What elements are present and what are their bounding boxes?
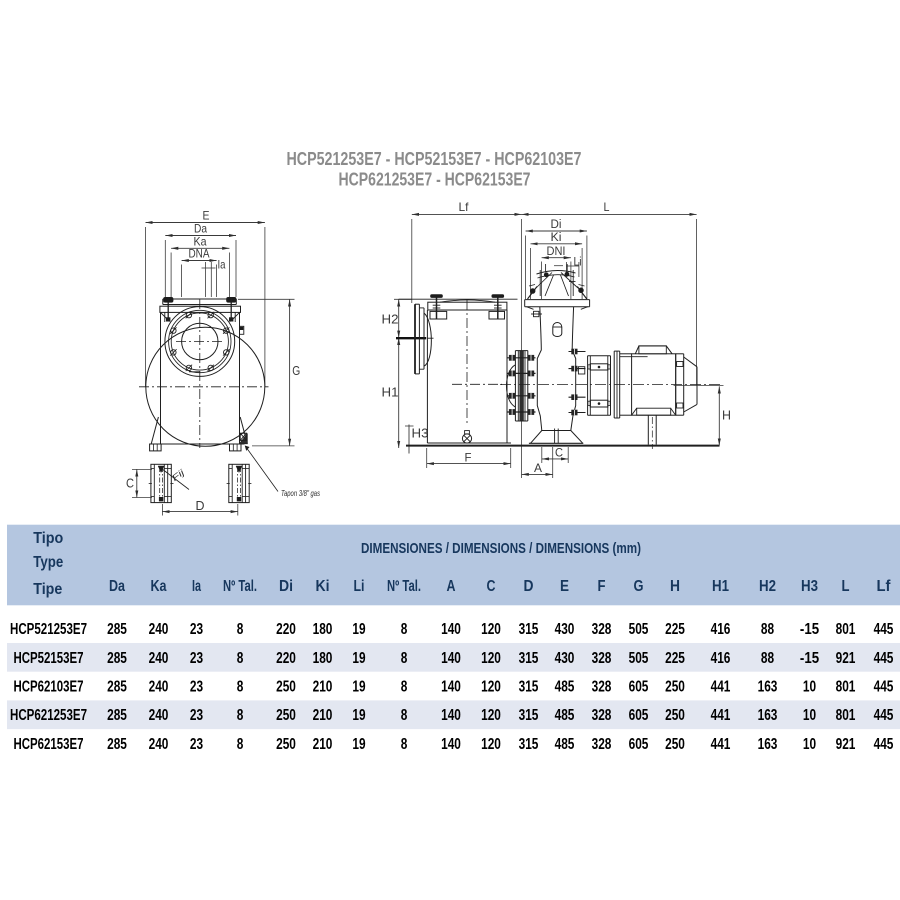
svg-text:801: 801 (836, 621, 856, 638)
svg-text:180: 180 (313, 650, 333, 667)
svg-text:505: 505 (629, 650, 649, 667)
svg-text:120: 120 (481, 736, 501, 753)
svg-text:Li: Li (574, 257, 582, 269)
svg-text:140: 140 (441, 621, 461, 638)
svg-text:8: 8 (401, 707, 408, 724)
svg-text:Ka: Ka (151, 578, 167, 595)
svg-text:H1: H1 (712, 578, 729, 595)
svg-text:19: 19 (352, 736, 365, 753)
svg-text:328: 328 (592, 679, 612, 696)
svg-text:D: D (196, 499, 205, 513)
svg-text:445: 445 (874, 707, 894, 724)
svg-text:19: 19 (352, 707, 365, 724)
svg-text:120: 120 (481, 679, 501, 696)
svg-text:8: 8 (237, 707, 244, 724)
svg-text:921: 921 (836, 736, 856, 753)
svg-text:416: 416 (711, 621, 731, 638)
svg-text:23: 23 (190, 736, 203, 753)
svg-text:19: 19 (352, 621, 365, 638)
svg-text:H3: H3 (801, 578, 818, 595)
svg-text:120: 120 (481, 707, 501, 724)
svg-text:285: 285 (107, 707, 127, 724)
svg-text:F: F (465, 450, 472, 464)
svg-text:E: E (560, 578, 569, 595)
svg-text:Li: Li (354, 578, 365, 595)
svg-text:220: 220 (276, 650, 296, 667)
svg-text:250: 250 (665, 736, 685, 753)
svg-text:88: 88 (761, 650, 774, 667)
svg-text:285: 285 (107, 736, 127, 753)
svg-text:A: A (534, 461, 542, 475)
svg-text:-15: -15 (800, 621, 819, 638)
svg-text:8: 8 (401, 736, 408, 753)
svg-text:19: 19 (352, 650, 365, 667)
svg-text:19: 19 (352, 679, 365, 696)
svg-text:H: H (722, 409, 731, 423)
svg-text:430: 430 (555, 621, 575, 638)
svg-text:8: 8 (237, 621, 244, 638)
svg-text:F: F (598, 578, 606, 595)
svg-text:23: 23 (190, 707, 203, 724)
svg-text:C: C (555, 446, 563, 460)
svg-text:220: 220 (276, 621, 296, 638)
svg-text:Da: Da (109, 578, 125, 595)
svg-text:HCP521253E7: HCP521253E7 (10, 621, 87, 638)
svg-text:163: 163 (758, 679, 778, 696)
svg-text:Tipe: Tipe (33, 581, 62, 598)
svg-text:10: 10 (803, 679, 816, 696)
svg-text:Ki: Ki (316, 578, 330, 595)
svg-text:140: 140 (441, 736, 461, 753)
svg-text:210: 210 (313, 707, 333, 724)
svg-text:225: 225 (665, 621, 685, 638)
svg-text:315: 315 (519, 679, 539, 696)
svg-text:801: 801 (836, 679, 856, 696)
svg-text:E: E (203, 209, 210, 223)
svg-text:G: G (292, 364, 300, 378)
svg-text:Ia: Ia (192, 578, 201, 595)
svg-text:328: 328 (592, 707, 612, 724)
svg-text:120: 120 (481, 621, 501, 638)
svg-text:120: 120 (481, 650, 501, 667)
svg-text:DNA: DNA (189, 247, 210, 261)
svg-text:Di: Di (551, 219, 562, 231)
svg-text:Tipo: Tipo (33, 530, 63, 547)
svg-text:C: C (126, 477, 134, 491)
svg-text:88: 88 (761, 621, 774, 638)
svg-text:315: 315 (519, 650, 539, 667)
svg-text:250: 250 (276, 707, 296, 724)
svg-text:10: 10 (803, 707, 816, 724)
svg-text:605: 605 (629, 736, 649, 753)
svg-text:DIMENSIONES / DIMENSIONS / DIM: DIMENSIONES / DIMENSIONS / DIMENSIONS (m… (361, 540, 641, 557)
svg-text:8: 8 (401, 650, 408, 667)
svg-text:505: 505 (629, 621, 649, 638)
svg-text:Type: Type (33, 554, 63, 571)
svg-text:180: 180 (313, 621, 333, 638)
svg-text:HCP521253E7 - HCP52153E7 - HCP: HCP521253E7 - HCP52153E7 - HCP62103E7 (287, 148, 582, 169)
svg-text:H2: H2 (382, 313, 399, 327)
svg-text:441: 441 (711, 707, 731, 724)
svg-text:328: 328 (592, 736, 612, 753)
svg-text:315: 315 (519, 736, 539, 753)
svg-text:210: 210 (313, 679, 333, 696)
svg-text:-15: -15 (800, 650, 819, 667)
svg-text:L: L (842, 578, 850, 595)
svg-text:240: 240 (149, 679, 169, 696)
svg-text:445: 445 (874, 621, 894, 638)
svg-text:HCP621253E7: HCP621253E7 (10, 707, 87, 724)
svg-text:445: 445 (874, 736, 894, 753)
svg-text:8: 8 (237, 736, 244, 753)
svg-text:8: 8 (401, 621, 408, 638)
svg-text:Lf: Lf (877, 578, 892, 595)
svg-text:L: L (604, 200, 610, 214)
svg-text:441: 441 (711, 679, 731, 696)
svg-text:HCP621253E7 - HCP62153E7: HCP621253E7 - HCP62153E7 (339, 168, 531, 189)
svg-text:416: 416 (711, 650, 731, 667)
svg-text:240: 240 (149, 621, 169, 638)
svg-text:23: 23 (190, 679, 203, 696)
svg-text:210: 210 (313, 736, 333, 753)
svg-text:8: 8 (237, 650, 244, 667)
svg-text:801: 801 (836, 707, 856, 724)
svg-text:445: 445 (874, 679, 894, 696)
svg-text:240: 240 (149, 650, 169, 667)
svg-text:485: 485 (555, 707, 575, 724)
svg-text:140: 140 (441, 679, 461, 696)
svg-text:D: D (524, 578, 534, 595)
svg-text:250: 250 (665, 707, 685, 724)
svg-text:140: 140 (441, 650, 461, 667)
svg-text:250: 250 (276, 736, 296, 753)
svg-text:285: 285 (107, 679, 127, 696)
svg-text:328: 328 (592, 621, 612, 638)
svg-text:HCP62103E7: HCP62103E7 (14, 679, 84, 696)
svg-text:250: 250 (276, 679, 296, 696)
svg-text:Di: Di (279, 578, 293, 595)
svg-text:Nº Tal.: Nº Tal. (223, 578, 257, 595)
svg-text:163: 163 (758, 736, 778, 753)
svg-text:441: 441 (711, 736, 731, 753)
svg-text:H3: H3 (412, 427, 429, 441)
svg-text:430: 430 (555, 650, 575, 667)
svg-text:225: 225 (665, 650, 685, 667)
svg-text:485: 485 (555, 679, 575, 696)
svg-text:H: H (670, 578, 680, 595)
svg-text:DNI: DNI (547, 246, 566, 258)
svg-text:H1: H1 (382, 386, 399, 400)
svg-text:315: 315 (519, 707, 539, 724)
svg-text:445: 445 (874, 650, 894, 667)
svg-text:Ki: Ki (551, 232, 562, 244)
svg-text:23: 23 (190, 621, 203, 638)
svg-text:Nº Tal.: Nº Tal. (387, 578, 421, 595)
svg-text:328: 328 (592, 650, 612, 667)
svg-text:285: 285 (107, 621, 127, 638)
svg-text:G: G (634, 578, 644, 595)
svg-text:240: 240 (149, 736, 169, 753)
svg-text:605: 605 (629, 707, 649, 724)
svg-text:Ia: Ia (218, 258, 226, 272)
svg-text:8: 8 (401, 679, 408, 696)
svg-text:485: 485 (555, 736, 575, 753)
svg-text:HCP52153E7: HCP52153E7 (14, 650, 84, 667)
svg-text:8: 8 (237, 679, 244, 696)
svg-text:10: 10 (803, 736, 816, 753)
svg-text:C: C (487, 578, 496, 595)
svg-text:163: 163 (758, 707, 778, 724)
svg-text:921: 921 (836, 650, 856, 667)
svg-text:HCP62153E7: HCP62153E7 (14, 736, 84, 753)
svg-text:H2: H2 (759, 578, 776, 595)
svg-text:250: 250 (665, 679, 685, 696)
svg-text:Tapon 3/8" gas: Tapon 3/8" gas (281, 488, 321, 498)
svg-text:23: 23 (190, 650, 203, 667)
svg-text:A: A (447, 578, 456, 595)
svg-text:285: 285 (107, 650, 127, 667)
svg-text:315: 315 (519, 621, 539, 638)
svg-text:605: 605 (629, 679, 649, 696)
svg-text:Lf: Lf (459, 200, 470, 214)
svg-text:140: 140 (441, 707, 461, 724)
svg-text:240: 240 (149, 707, 169, 724)
